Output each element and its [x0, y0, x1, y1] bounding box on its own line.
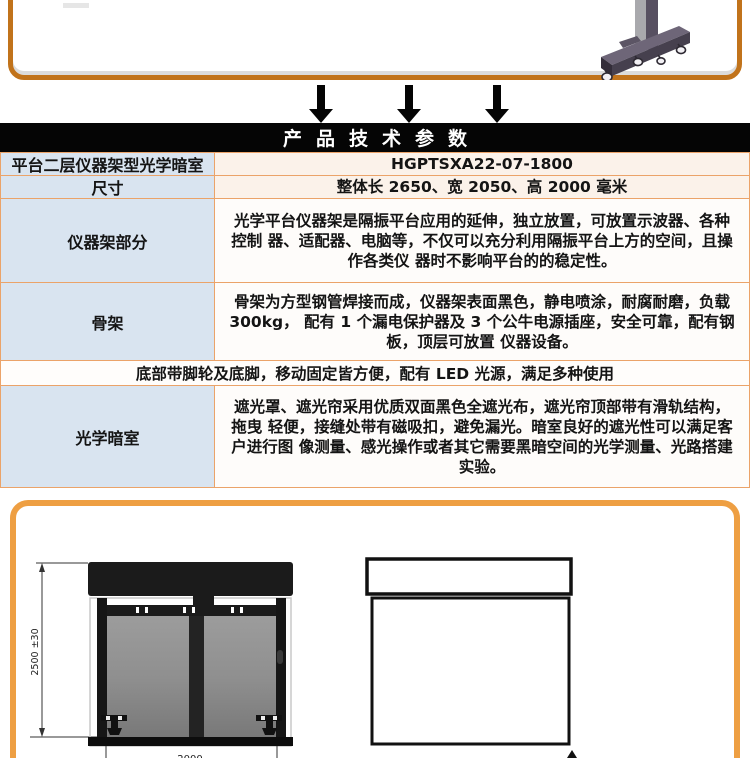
front-view-drawing: 2500 ±30	[30, 562, 293, 758]
row-label: 骨架	[0, 283, 215, 360]
cabinet-top-cap	[88, 562, 293, 596]
product-photo	[583, 0, 703, 80]
table-row: 骨架 骨架为方型钢管焊接而成，仪器架表面黑色，静电喷涂，耐腐耐磨，负载300kg…	[0, 283, 750, 361]
section-title-banner: 产品技术参数	[0, 123, 750, 152]
photo-fragment	[63, 3, 89, 8]
row-label: 尺寸	[0, 176, 215, 198]
left-door-panel	[106, 612, 191, 744]
dim-arrow-top	[39, 563, 45, 572]
row-label: 仪器架部分	[0, 199, 215, 282]
down-arrow-icon	[397, 85, 421, 123]
table-row: 底部带脚轮及底脚，移动固定皆方便，配有 LED 光源，满足多种使用	[0, 361, 750, 386]
table-row: 光学暗室 遮光罩、遮光帘采用优质双面黑色全遮光布，遮光帘顶部带有滑轨结构，拖曳 …	[0, 386, 750, 488]
door-handle-notch	[277, 650, 283, 664]
height-dimension-label: 2500 ±30	[30, 628, 41, 675]
down-arrow-icon	[485, 85, 509, 123]
row-label: 光学暗室	[0, 386, 215, 487]
table-row: 仪器架部分 光学平台仪器架是隔振平台应用的延伸，独立放置，可放置示波器、各种控制…	[0, 199, 750, 283]
down-arrow-icon	[309, 85, 333, 123]
frame-description: 骨架为方型钢管焊接而成，仪器架表面黑色，静电喷涂，耐腐耐磨，负载300kg， 配…	[215, 283, 750, 360]
center-strip	[189, 610, 204, 746]
table-row: 平台二层仪器架型光学暗室 HGPTSXA22-07-1800	[0, 153, 750, 176]
dimensions-value: 整体长 2650、宽 2050、高 2000 毫米	[215, 176, 750, 198]
row-label: 平台二层仪器架型光学暗室	[0, 153, 215, 175]
section-title: 产品技术参数	[283, 124, 481, 151]
cabinet-bottom-bar	[88, 737, 293, 746]
dim-arrow-bottom	[39, 728, 45, 737]
model-number: HGPTSXA22-07-1800	[215, 153, 750, 175]
side-view-drawing	[367, 559, 577, 758]
product-spec-page: 产品技术参数 平台二层仪器架型光学暗室 HGPTSXA22-07-1800 尺寸…	[0, 0, 750, 758]
darkroom-description: 遮光罩、遮光帘采用优质双面黑色全遮光布，遮光帘顶部带有滑轨结构，拖曳 轻便，接缝…	[215, 386, 750, 487]
instrument-rack-description: 光学平台仪器架是隔振平台应用的延伸，独立放置，可放置示波器、各种控制 器、适配器…	[215, 199, 750, 282]
slide-rail	[107, 605, 276, 616]
side-dim-arrow	[567, 750, 577, 758]
side-view-top-cap	[367, 559, 571, 594]
technical-drawings: 2500 ±30	[0, 540, 750, 758]
spec-table: 平台二层仪器架型光学暗室 HGPTSXA22-07-1800 尺寸 整体长 26…	[0, 152, 750, 488]
base-feature-note: 底部带脚轮及底脚，移动固定皆方便，配有 LED 光源，满足多种使用	[0, 361, 750, 385]
table-row: 尺寸 整体长 2650、宽 2050、高 2000 毫米	[0, 176, 750, 199]
width-dimension-label: 2000	[177, 754, 202, 758]
side-view-body	[372, 598, 569, 744]
